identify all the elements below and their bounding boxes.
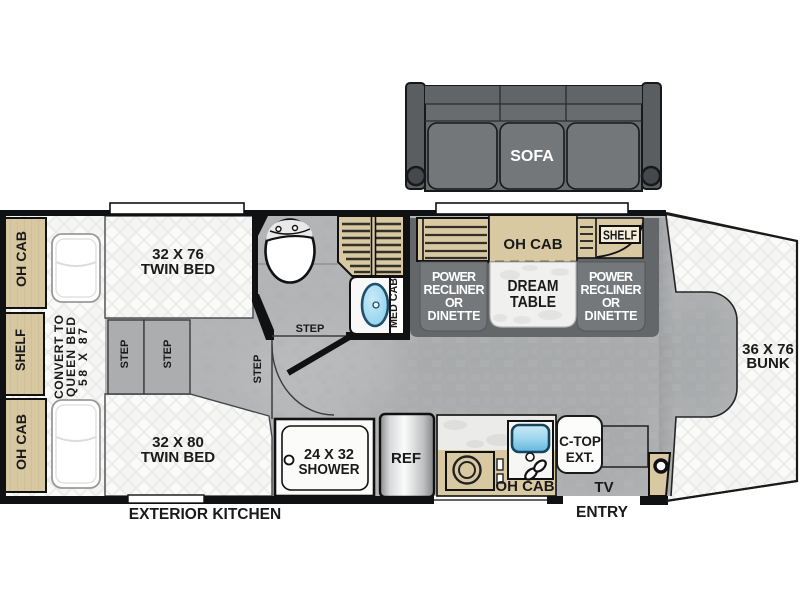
- svg-text:EXTERIOR KITCHEN: EXTERIOR KITCHEN: [129, 506, 281, 523]
- svg-text:OR: OR: [602, 296, 620, 310]
- svg-text:MED CAB: MED CAB: [388, 278, 400, 328]
- svg-text:OH CAB: OH CAB: [495, 478, 554, 495]
- svg-text:RECLINER: RECLINER: [424, 283, 485, 297]
- svg-text:EXT.: EXT.: [566, 450, 595, 465]
- svg-text:REF: REF: [391, 450, 421, 467]
- svg-text:TABLE: TABLE: [510, 294, 556, 311]
- svg-text:DREAM: DREAM: [508, 278, 559, 295]
- svg-text:SHOWER: SHOWER: [299, 462, 360, 478]
- svg-text:SOFA: SOFA: [510, 148, 554, 165]
- svg-text:RECLINER: RECLINER: [581, 283, 642, 297]
- svg-text:OH CAB: OH CAB: [503, 236, 562, 253]
- svg-text:24 X 32: 24 X 32: [304, 447, 354, 463]
- svg-text:TV: TV: [594, 479, 613, 496]
- svg-text:OR: OR: [445, 296, 463, 310]
- svg-text:OH CAB: OH CAB: [14, 231, 29, 287]
- svg-text:SHELF: SHELF: [603, 229, 637, 243]
- svg-text:STEP: STEP: [119, 340, 131, 369]
- svg-text:STEP: STEP: [296, 323, 325, 335]
- svg-text:DINETTE: DINETTE: [428, 309, 481, 323]
- svg-text:POWER: POWER: [589, 270, 633, 284]
- svg-text:ENTRY: ENTRY: [576, 504, 629, 521]
- svg-text:POWER: POWER: [432, 270, 476, 284]
- svg-text:TWIN BED: TWIN BED: [141, 261, 215, 278]
- svg-text:OH CAB: OH CAB: [14, 414, 29, 470]
- svg-text:BUNK: BUNK: [746, 355, 789, 372]
- svg-text:STEP: STEP: [252, 355, 264, 384]
- svg-text:SHELF: SHELF: [13, 329, 28, 371]
- svg-text:C-TOP: C-TOP: [559, 434, 601, 449]
- svg-text:STEP: STEP: [162, 340, 174, 369]
- svg-text:DINETTE: DINETTE: [585, 309, 638, 323]
- svg-text:TWIN BED: TWIN BED: [141, 449, 215, 466]
